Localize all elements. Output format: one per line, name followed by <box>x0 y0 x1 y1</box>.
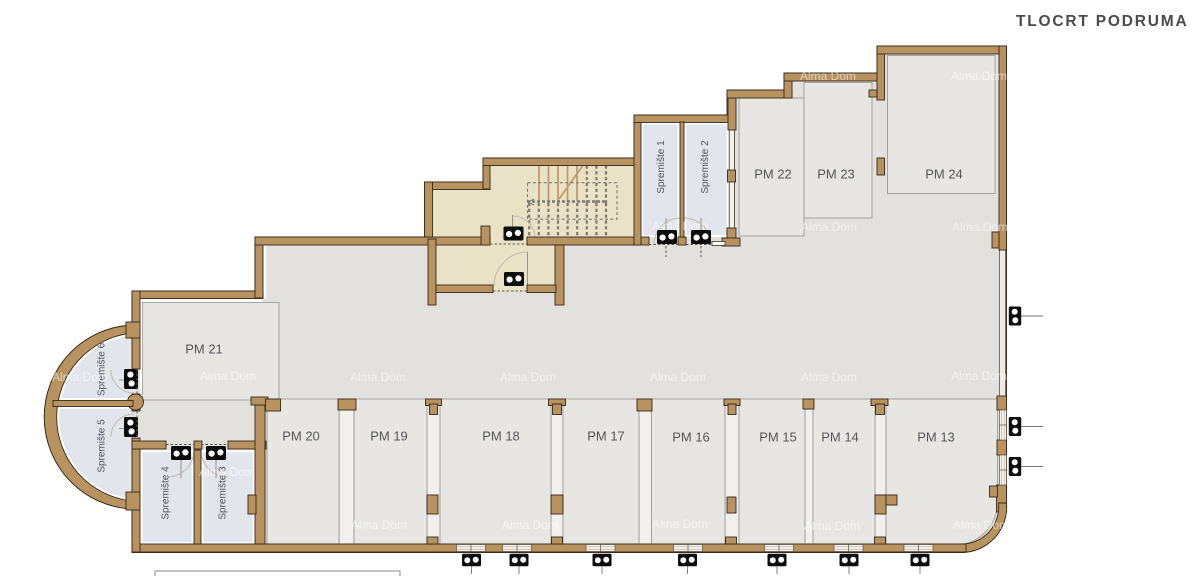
svg-text:Spremište 2: Spremište 2 <box>700 140 711 194</box>
svg-text:PM 13: PM 13 <box>917 430 955 445</box>
svg-text:PM 20: PM 20 <box>282 429 320 444</box>
svg-text:Alma Dom: Alma Dom <box>199 465 255 479</box>
svg-text:PM 18: PM 18 <box>482 429 520 444</box>
svg-text:Spremište 4: Spremište 4 <box>161 466 172 520</box>
svg-text:PM 22: PM 22 <box>754 167 792 182</box>
svg-text:Spremište 5: Spremište 5 <box>97 419 108 473</box>
svg-text:Alma Dom: Alma Dom <box>650 370 706 384</box>
svg-text:Alma Dom: Alma Dom <box>804 519 860 533</box>
svg-text:Alma Dom: Alma Dom <box>502 518 558 532</box>
svg-text:TLOCRT PODRUMA: TLOCRT PODRUMA <box>1016 13 1188 30</box>
svg-text:Alma Dom: Alma Dom <box>350 370 406 384</box>
svg-text:Spremište 1: Spremište 1 <box>656 140 667 194</box>
svg-text:PM 15: PM 15 <box>759 430 797 445</box>
svg-text:Alma Dom: Alma Dom <box>500 370 556 384</box>
svg-text:Alma Dom: Alma Dom <box>800 69 856 83</box>
svg-text:Alma Dom: Alma Dom <box>351 518 407 532</box>
svg-text:Alma Dom: Alma Dom <box>801 220 857 234</box>
svg-text:PM 19: PM 19 <box>370 429 408 444</box>
svg-text:Alma Dom: Alma Dom <box>951 369 1007 383</box>
svg-text:Alma Dom: Alma Dom <box>952 220 1008 234</box>
svg-text:PM 24: PM 24 <box>925 167 963 182</box>
svg-text:Alma Dom: Alma Dom <box>953 518 1009 532</box>
svg-text:Alma Dom: Alma Dom <box>652 517 708 531</box>
svg-text:Alma Dom: Alma Dom <box>652 219 708 233</box>
svg-text:Alma Dom: Alma Dom <box>200 369 256 383</box>
svg-text:Alma Dom: Alma Dom <box>951 69 1007 83</box>
svg-text:PM 21: PM 21 <box>185 342 223 357</box>
svg-text:PM 17: PM 17 <box>587 429 625 444</box>
svg-text:Alma Dom: Alma Dom <box>801 370 857 384</box>
svg-text:PM 23: PM 23 <box>817 167 855 182</box>
svg-text:PM 14: PM 14 <box>821 430 859 445</box>
svg-text:PM 16: PM 16 <box>672 430 710 445</box>
svg-text:Alma Dom: Alma Dom <box>52 370 108 384</box>
